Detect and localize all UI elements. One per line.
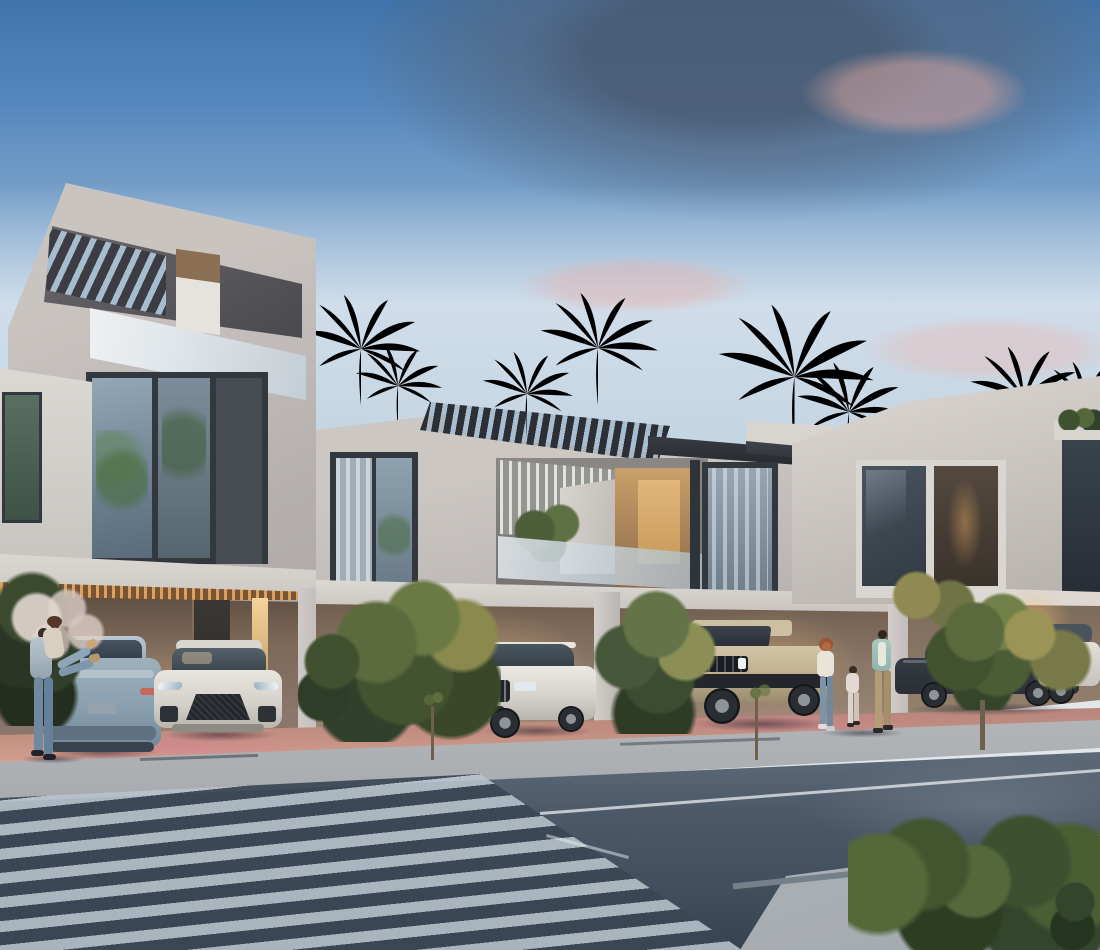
man-leg — [34, 677, 43, 752]
mother-leg — [820, 676, 826, 725]
woman-boot — [88, 653, 101, 664]
corner-bush — [1050, 876, 1100, 950]
child-leg — [854, 692, 859, 723]
woman-boot — [85, 638, 98, 650]
edge-window-strip — [1062, 438, 1100, 602]
pink-cloud — [800, 48, 1030, 138]
headlight — [514, 682, 536, 691]
mother-shoe — [826, 726, 835, 731]
sapling-trunk — [431, 706, 434, 760]
headlight — [157, 682, 183, 690]
plant-reflection — [378, 500, 410, 570]
walking-family — [812, 622, 912, 740]
father-tshirt — [878, 642, 886, 666]
father-head — [878, 630, 887, 639]
wheel — [558, 706, 584, 732]
man-leg — [44, 677, 53, 755]
embracing-couple — [14, 612, 100, 764]
headlight — [738, 658, 746, 669]
front-grille — [186, 694, 250, 720]
small-dark-palm — [298, 628, 360, 740]
man-shoe — [43, 754, 56, 760]
woman-torso — [42, 627, 65, 659]
fog-lamp-recess — [258, 706, 276, 722]
roof-planting — [1056, 406, 1100, 430]
father-shoe — [883, 725, 893, 730]
interior-hint — [182, 652, 212, 664]
child-leg — [848, 692, 853, 725]
sapling-leaves — [418, 688, 446, 712]
sapling-leaves — [742, 680, 772, 706]
curtain-pane — [336, 458, 372, 582]
child-shoe — [853, 721, 860, 725]
father-leg — [875, 670, 882, 729]
mother-torso — [817, 651, 834, 677]
plant-reflection — [96, 430, 148, 520]
white-crossover-front — [152, 636, 287, 741]
sapling-trunk — [755, 698, 758, 760]
fog-lamp-recess — [160, 706, 178, 722]
father-shoe — [873, 728, 883, 733]
olive-palm-fronds — [975, 594, 1097, 696]
curtain-stripes — [712, 468, 768, 594]
window-post — [690, 460, 700, 592]
bumper-lip — [172, 724, 264, 732]
fan-palm-bush — [592, 586, 726, 734]
side-window — [2, 392, 42, 523]
architectural-render-scene — [0, 0, 1100, 950]
father-leg — [884, 670, 891, 726]
mother-leg — [827, 676, 833, 727]
child-torso — [846, 673, 859, 693]
plant-reflection — [162, 400, 206, 510]
man-shoe — [31, 750, 44, 756]
white-accent-panel — [176, 277, 220, 335]
headlight — [253, 682, 279, 690]
mother-head — [822, 642, 831, 651]
glass-reflection — [866, 470, 906, 550]
tree-trunk — [980, 700, 985, 750]
dark-panel — [216, 378, 262, 564]
